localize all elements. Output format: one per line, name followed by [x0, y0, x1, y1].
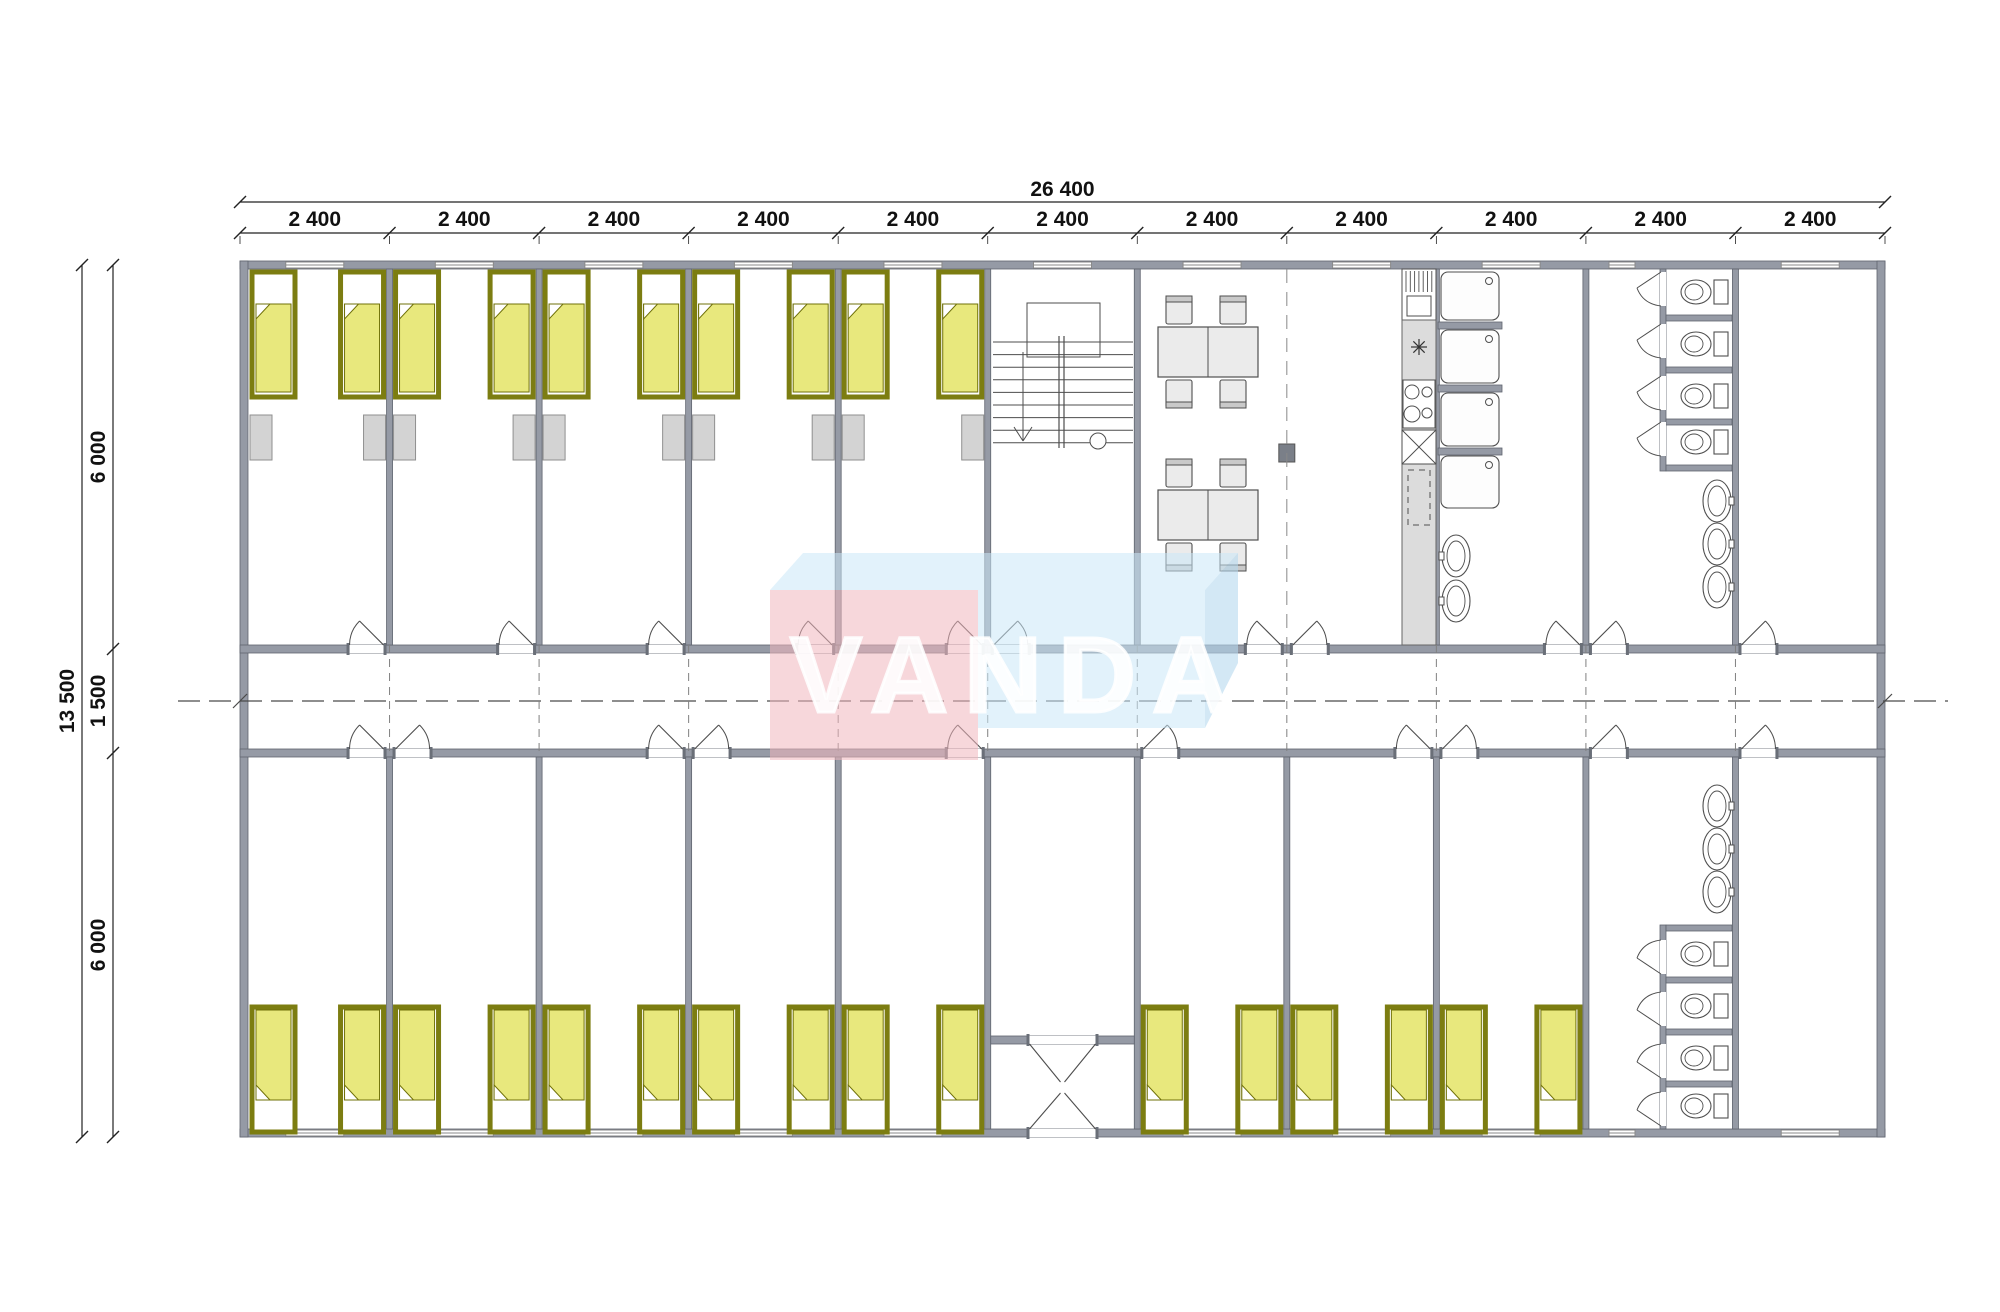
interior-wall-bottom-band — [387, 757, 393, 1129]
dimension-label: 6 000 — [87, 919, 110, 972]
door-jamb — [1430, 747, 1433, 759]
bed — [252, 272, 295, 397]
door-swing-arc — [350, 621, 360, 645]
shower-tray — [1441, 393, 1499, 446]
door-swing-arc — [649, 621, 659, 645]
door-swing-arc — [1765, 725, 1775, 749]
dimension-label: 2 400 — [1335, 208, 1388, 231]
bed-blanket — [943, 304, 978, 392]
door-opening — [1442, 749, 1476, 757]
stair-newel-circle — [1090, 433, 1106, 449]
locker — [513, 415, 535, 460]
door-leaf — [509, 621, 533, 645]
wc-stall-divider — [1666, 315, 1732, 321]
bed-blanket — [1446, 1010, 1481, 1100]
bed-blanket — [494, 1010, 529, 1100]
door-jamb — [1439, 747, 1442, 759]
bed — [396, 1007, 439, 1132]
logo-box-top — [770, 553, 1238, 590]
chair-back — [1220, 459, 1246, 465]
wc-door-arc — [1637, 392, 1661, 410]
toilet-bowl — [1681, 1046, 1711, 1070]
wash-basin — [1439, 535, 1470, 577]
locker — [250, 415, 272, 460]
door-opening — [1030, 1129, 1096, 1137]
wc-stall-divider — [1666, 925, 1732, 931]
wc-door-arc — [1637, 1044, 1661, 1062]
door-leaf — [1741, 621, 1765, 645]
door-jamb — [1096, 1127, 1099, 1139]
door-jamb — [1589, 747, 1592, 759]
door-swing-arc — [649, 725, 659, 749]
door-jamb — [683, 747, 686, 759]
door-jamb — [1281, 643, 1284, 655]
bed-blanket — [1147, 1010, 1182, 1100]
wc-stall-divider — [1666, 1029, 1732, 1035]
chair — [1166, 296, 1192, 324]
wash-basin — [1439, 580, 1470, 622]
door-swing-arc — [1396, 725, 1406, 749]
bed — [1442, 1007, 1485, 1132]
door-opening — [1660, 940, 1666, 974]
basin-tap — [1439, 552, 1444, 560]
interior-wall-top-band — [686, 269, 692, 645]
toilet — [1681, 280, 1728, 304]
bed — [490, 272, 533, 397]
wc-stall-divider — [1666, 367, 1732, 373]
door-jamb — [384, 747, 387, 759]
bed — [695, 272, 738, 397]
dimension-label: 6 000 — [87, 431, 110, 484]
chair — [1220, 380, 1246, 408]
floor-plan-page: 26 4002 4002 4002 4002 4002 4002 4002 40… — [0, 0, 2000, 1312]
bed — [1238, 1007, 1281, 1132]
door-jamb — [1096, 1034, 1099, 1046]
door-swing-arc — [1765, 621, 1775, 645]
toilet — [1681, 1094, 1728, 1118]
door-opening — [1660, 376, 1666, 410]
dimension-label: 1 500 — [87, 675, 110, 728]
toilet-bowl — [1681, 942, 1711, 966]
dimension-label: 2 400 — [1186, 208, 1239, 231]
door-leaf — [1257, 621, 1281, 645]
door-opening — [1247, 645, 1281, 653]
bed — [844, 1007, 887, 1132]
toilet-tank — [1714, 1046, 1728, 1070]
basin-tap — [1729, 802, 1734, 810]
shower-divider — [1438, 385, 1502, 392]
door-opening — [1143, 749, 1177, 757]
door-leaf — [659, 725, 683, 749]
toilet — [1681, 1046, 1728, 1070]
dining-table-group — [1158, 327, 1258, 377]
dimension-label: 2 400 — [1485, 208, 1538, 231]
wc-door-leaf — [1637, 1062, 1661, 1078]
bed-blanket — [699, 1010, 734, 1100]
dimension-label: 2 400 — [887, 208, 940, 231]
dimension-label: 2 400 — [588, 208, 641, 231]
bed — [545, 272, 588, 397]
door-leaf — [1442, 725, 1466, 749]
door-opening — [1592, 749, 1626, 757]
bed — [1293, 1007, 1336, 1132]
wc-door-arc — [1637, 438, 1661, 456]
wash-basin — [1703, 523, 1734, 565]
door-jamb — [1140, 747, 1143, 759]
dimension-label: 2 400 — [1634, 208, 1687, 231]
chair — [1220, 296, 1246, 324]
interior-wall-bottom-band — [1732, 757, 1738, 1129]
toilet-tank — [1714, 384, 1728, 408]
toilet-tank — [1714, 942, 1728, 966]
door-opening — [499, 645, 533, 653]
door-swing-arc — [420, 725, 430, 749]
chair — [1166, 459, 1192, 487]
door-opening — [1660, 1044, 1666, 1078]
stair-arrow — [1014, 427, 1023, 441]
wc-door-leaf — [1637, 1110, 1661, 1126]
chair-back — [1166, 459, 1192, 465]
door-opening — [1660, 992, 1666, 1026]
shower-stall — [1441, 393, 1499, 446]
bed — [1537, 1007, 1580, 1132]
door-opening — [1030, 1036, 1096, 1044]
door-opening — [649, 749, 683, 757]
shower-divider — [1438, 448, 1502, 455]
wc-door-arc — [1637, 340, 1661, 358]
bed-blanket — [699, 304, 734, 392]
interior-wall-bottom-band — [985, 757, 991, 1129]
toilet-bowl — [1681, 1094, 1711, 1118]
wc-door-arc — [1637, 940, 1661, 958]
shower-tray — [1441, 272, 1499, 320]
door-opening — [1660, 272, 1666, 306]
door-jamb — [692, 747, 695, 759]
door-leaf — [1592, 725, 1616, 749]
bed-blanket — [549, 1010, 584, 1100]
door-leaf — [1592, 621, 1616, 645]
door-swing-arc — [1317, 621, 1327, 645]
wc-door-leaf — [1637, 376, 1661, 392]
bed-blanket — [549, 304, 584, 392]
door-jamb — [1290, 643, 1293, 655]
door-opening — [396, 749, 430, 757]
wash-basin — [1703, 480, 1734, 522]
locker — [962, 415, 984, 460]
door-jamb — [1580, 643, 1583, 655]
door-jamb — [1589, 643, 1592, 655]
door-jamb — [982, 747, 985, 759]
bed-blanket — [1297, 1010, 1332, 1100]
watermark-logo: VANDA — [770, 553, 1246, 760]
toilet-tank — [1714, 994, 1728, 1018]
wc-stall-divider — [1666, 1081, 1732, 1087]
toilet-bowl — [1681, 332, 1711, 356]
toilet-tank — [1714, 1094, 1728, 1118]
dimension-label: 2 400 — [737, 208, 790, 231]
bed-blanket — [943, 1010, 978, 1100]
bed — [1387, 1007, 1430, 1132]
interior-wall-bottom-band — [835, 757, 841, 1129]
staircase — [993, 303, 1133, 449]
bed-blanket — [793, 1010, 828, 1100]
door-jamb — [683, 643, 686, 655]
door-leaf — [1406, 725, 1430, 749]
bed-blanket — [1541, 1010, 1576, 1100]
door-swing-arc — [499, 621, 509, 645]
interior-wall-bottom-band — [536, 757, 542, 1129]
oven — [1407, 296, 1431, 316]
bed — [545, 1007, 588, 1132]
bed-blanket — [494, 304, 529, 392]
door-opening — [1660, 422, 1666, 456]
wc-door-arc — [1637, 1092, 1661, 1110]
bed-blanket — [400, 1010, 435, 1100]
wash-basin — [1703, 785, 1734, 827]
bed-blanket — [345, 304, 380, 392]
wc-door-leaf — [1637, 422, 1661, 438]
dining-table-group — [1158, 490, 1258, 540]
chair-back — [1166, 296, 1192, 302]
interior-wall-top-band — [387, 269, 393, 645]
bed-blanket — [1242, 1010, 1277, 1100]
locker — [394, 415, 416, 460]
floor-plan-canvas: 26 4002 4002 4002 4002 4002 4002 4002 40… — [0, 0, 2000, 1312]
door-leaf — [1556, 621, 1580, 645]
locker — [663, 415, 685, 460]
wash-basin — [1703, 828, 1734, 870]
door-jamb — [1738, 643, 1741, 655]
door-jamb — [1027, 1034, 1030, 1046]
bed — [490, 1007, 533, 1132]
toilet-bowl — [1681, 994, 1711, 1018]
dimension-label: 26 400 — [1030, 178, 1094, 201]
toilet — [1681, 994, 1728, 1018]
wash-basin — [1703, 566, 1734, 608]
bed — [341, 272, 384, 397]
locker — [693, 415, 715, 460]
locker — [364, 415, 386, 460]
bed — [939, 272, 982, 397]
toilet — [1681, 332, 1728, 356]
interior-wall-top-band — [536, 269, 542, 645]
door-jamb — [393, 747, 396, 759]
interior-wall-bottom-band — [1284, 757, 1290, 1129]
bed — [844, 272, 887, 397]
exterior-wall-right — [1877, 261, 1885, 1137]
corridor-wall-bottom — [240, 749, 1885, 757]
door-swing-arc — [719, 725, 729, 749]
bed-blanket — [848, 1010, 883, 1100]
door-swing-arc — [1616, 621, 1626, 645]
toilet-bowl — [1681, 430, 1711, 454]
door-opening — [695, 749, 729, 757]
door-leaf — [1293, 621, 1317, 645]
basin-tap — [1729, 497, 1734, 505]
toilet — [1681, 430, 1728, 454]
chair-back — [1166, 402, 1192, 408]
wc-stall-divider — [1666, 419, 1732, 425]
shower-stall — [1441, 272, 1499, 320]
bed-blanket — [644, 1010, 679, 1100]
door-opening — [1660, 324, 1666, 358]
door-opening — [1660, 1092, 1666, 1126]
door-swing-arc — [350, 725, 360, 749]
door-leaf — [1741, 725, 1765, 749]
bed — [396, 272, 439, 397]
bed-blanket — [345, 1010, 380, 1100]
interior-wall-bottom-band — [1583, 757, 1589, 1129]
bed-blanket — [400, 304, 435, 392]
entrance-door-leaf — [1030, 1093, 1061, 1129]
basin-tap — [1729, 845, 1734, 853]
bed-blanket — [1391, 1010, 1426, 1100]
shower-divider — [1438, 322, 1502, 329]
interior-wall-bottom-band — [686, 757, 692, 1129]
door-opening — [649, 645, 683, 653]
dimension-label: 2 400 — [1784, 208, 1837, 231]
bed — [341, 1007, 384, 1132]
bed-blanket — [644, 304, 679, 392]
basin-tap — [1729, 583, 1734, 591]
dimension-label: 2 400 — [438, 208, 491, 231]
shower-tray — [1441, 456, 1499, 508]
shower-tray — [1441, 330, 1499, 383]
door-swing-arc — [1247, 621, 1257, 645]
wash-basin — [1703, 871, 1734, 913]
chair — [1166, 380, 1192, 408]
bed-blanket — [793, 304, 828, 392]
door-jamb — [384, 643, 387, 655]
door-opening — [350, 749, 384, 757]
locker — [842, 415, 864, 460]
kitchen-strip — [1402, 269, 1436, 645]
toilet-tank — [1714, 430, 1728, 454]
locker — [543, 415, 565, 460]
door-opening — [1396, 749, 1430, 757]
door-opening — [1741, 749, 1775, 757]
wc-door-arc — [1637, 992, 1661, 1010]
bed — [1143, 1007, 1186, 1132]
bed-blanket — [256, 1010, 291, 1100]
toilet-tank — [1714, 332, 1728, 356]
basin-tap — [1729, 540, 1734, 548]
door-leaf — [659, 621, 683, 645]
interior-wall-top-band — [1583, 269, 1589, 645]
bed — [640, 1007, 683, 1132]
kitchen-counter — [1402, 320, 1436, 645]
chair-back — [1220, 402, 1246, 408]
bed — [789, 1007, 832, 1132]
bed — [695, 1007, 738, 1132]
door-opening — [350, 645, 384, 653]
wc-stall-divider — [1666, 465, 1732, 471]
interior-wall-bottom-band — [1134, 757, 1140, 1129]
door-jamb — [533, 643, 536, 655]
bed — [789, 272, 832, 397]
bed-blanket — [848, 304, 883, 392]
basin-tap — [1439, 597, 1444, 605]
entrance-door-leaf — [1065, 1093, 1096, 1129]
toilet — [1681, 384, 1728, 408]
door-leaf — [360, 725, 384, 749]
door-swing-arc — [1546, 621, 1556, 645]
bed-blanket — [256, 304, 291, 392]
wc-door-leaf — [1637, 324, 1661, 340]
wc-door-leaf — [1637, 272, 1661, 288]
shower-stall — [1441, 330, 1499, 383]
door-jamb — [1027, 1127, 1030, 1139]
door-opening — [1741, 645, 1775, 653]
locker — [812, 415, 834, 460]
door-opening — [1293, 645, 1327, 653]
toilet-tank — [1714, 280, 1728, 304]
chair-back — [1220, 296, 1246, 302]
wc-door-arc — [1637, 288, 1661, 306]
wc-door-leaf — [1637, 958, 1661, 974]
dimension-label: 2 400 — [288, 208, 341, 231]
door-swing-arc — [1616, 725, 1626, 749]
vestibule-door-leaf — [1030, 1044, 1061, 1082]
bed — [640, 272, 683, 397]
shower-stall — [1441, 456, 1499, 508]
dimension-label: 13 500 — [56, 669, 79, 733]
basin-tap — [1729, 888, 1734, 896]
toilet-bowl — [1681, 280, 1711, 304]
chair — [1220, 459, 1246, 487]
watermark-text: VANDA — [790, 614, 1246, 735]
dimension-label: 2 400 — [1036, 208, 1089, 231]
toilet — [1681, 942, 1728, 966]
door-opening — [1546, 645, 1580, 653]
vestibule-door-leaf — [1065, 1044, 1096, 1082]
toilet-bowl — [1681, 384, 1711, 408]
door-jamb — [1738, 747, 1741, 759]
door-leaf — [396, 725, 420, 749]
wc-stall-divider — [1666, 977, 1732, 983]
door-opening — [1592, 645, 1626, 653]
bed — [252, 1007, 295, 1132]
bed — [939, 1007, 982, 1132]
stair-arrow — [1023, 427, 1032, 441]
door-leaf — [695, 725, 719, 749]
wc-door-leaf — [1637, 1010, 1661, 1026]
door-leaf — [360, 621, 384, 645]
interior-wall-bottom-band — [1433, 757, 1439, 1129]
door-swing-arc — [1466, 725, 1476, 749]
